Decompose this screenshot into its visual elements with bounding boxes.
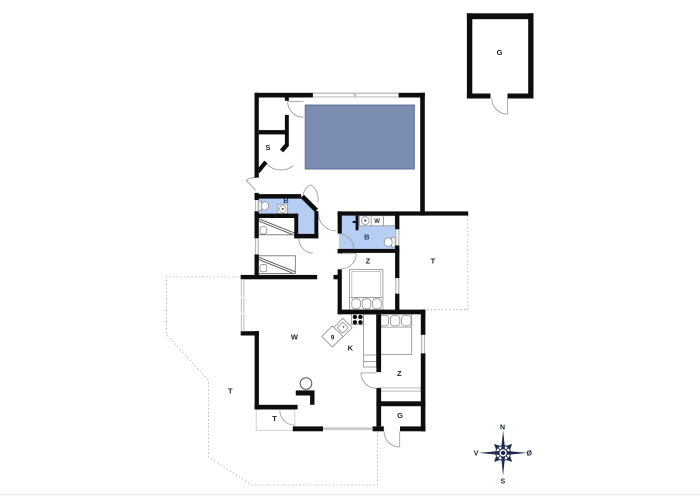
svg-text:W: W [291, 333, 299, 342]
svg-text:Z: Z [397, 369, 402, 378]
svg-text:N: N [500, 425, 505, 432]
svg-text:Z: Z [366, 257, 371, 266]
svg-text:S: S [500, 479, 505, 486]
svg-text:W: W [374, 219, 380, 225]
svg-text:V: V [474, 451, 479, 458]
svg-text:Ø: Ø [526, 450, 532, 457]
svg-text:G: G [397, 411, 403, 420]
svg-text:B: B [364, 232, 370, 241]
svg-text:T: T [431, 257, 436, 266]
svg-text:K: K [348, 344, 354, 353]
svg-text:9: 9 [331, 334, 335, 341]
svg-text:T: T [272, 414, 277, 423]
svg-text:G: G [497, 48, 503, 57]
svg-text:T: T [228, 387, 233, 396]
svg-text:B: B [283, 196, 289, 205]
svg-text:S: S [265, 143, 270, 152]
